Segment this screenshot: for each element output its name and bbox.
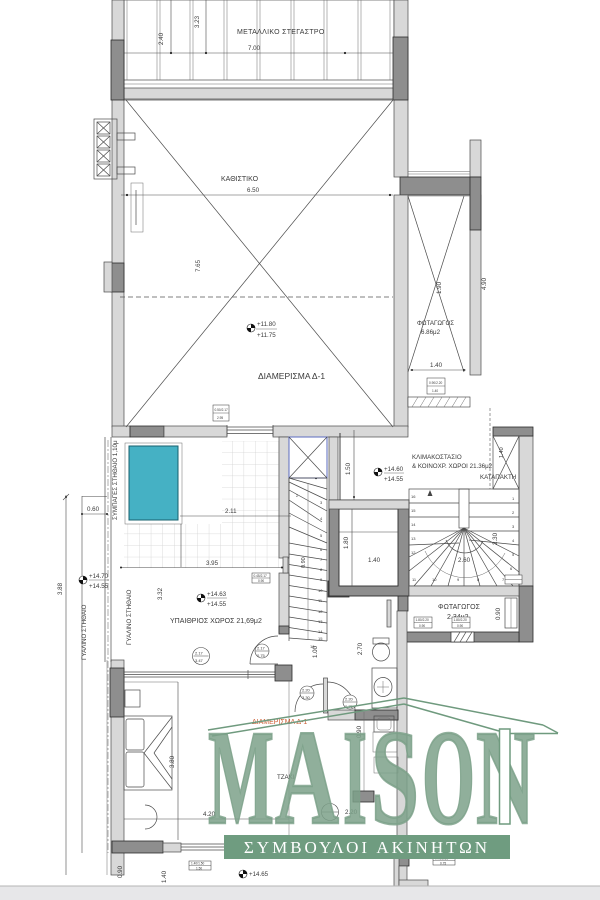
svg-text:2.17: 2.17 — [195, 651, 204, 656]
svg-text:2.11: 2.11 — [225, 508, 237, 515]
svg-text:16: 16 — [411, 494, 416, 499]
svg-text:0.90: 0.90 — [117, 865, 124, 878]
svg-text:A: A — [275, 703, 339, 853]
svg-text:1.40: 1.40 — [161, 870, 168, 883]
svg-text:0.50/2.17: 0.50/2.17 — [215, 408, 229, 412]
svg-text:7.65: 7.65 — [195, 259, 202, 272]
svg-text:1.80: 1.80 — [343, 536, 350, 549]
svg-text:0.60: 0.60 — [87, 506, 100, 513]
svg-text:+14.65: +14.65 — [249, 871, 269, 878]
svg-text:ΥΠΑΙΘΡΙΟΣ ΧΩΡΟΣ 21,69μ2: ΥΠΑΙΘΡΙΟΣ ΧΩΡΟΣ 21,69μ2 — [170, 618, 262, 625]
svg-text:6.50: 6.50 — [247, 187, 260, 194]
svg-text:0.90: 0.90 — [258, 579, 264, 583]
svg-text:ΣΥΜΠΑΓΕΣ ΣΤΗΘΑΙΟ 1,10μ: ΣΥΜΠΑΓΕΣ ΣΤΗΘΑΙΟ 1,10μ — [112, 440, 119, 520]
svg-text:14: 14 — [318, 629, 323, 634]
svg-text:0.90: 0.90 — [419, 624, 425, 628]
svg-text:2.40: 2.40 — [158, 32, 165, 45]
svg-text:15: 15 — [318, 636, 323, 641]
svg-text:ΚΑΘΙΣΤΙΚΟ: ΚΑΘΙΣΤΙΚΟ — [221, 176, 259, 183]
svg-text:ΚΛΙΜΑΚΟΣΤΑΣΙΟ: ΚΛΙΜΑΚΟΣΤΑΣΙΟ — [412, 454, 462, 461]
svg-text:ΦΩΤΑΓΩΓΟΣ: ΦΩΤΑΓΩΓΟΣ — [438, 604, 481, 611]
svg-text:O: O — [422, 703, 475, 853]
svg-text:S: S — [371, 703, 419, 853]
svg-text:2.30: 2.30 — [492, 532, 499, 545]
svg-text:0.90/2.20: 0.90/2.20 — [429, 381, 443, 385]
svg-text:1.40: 1.40 — [499, 447, 505, 458]
svg-text:2.20: 2.20 — [345, 697, 354, 702]
svg-text:2.70: 2.70 — [357, 642, 364, 655]
svg-text:6.86μ2: 6.86μ2 — [421, 329, 441, 336]
svg-text:+14.63: +14.63 — [207, 591, 227, 598]
svg-text:0.90: 0.90 — [495, 607, 502, 620]
svg-text:0.45/2.17: 0.45/2.17 — [254, 574, 268, 578]
svg-text:+14.55: +14.55 — [207, 601, 227, 608]
svg-text:ΜΕΤΑΛΛΙΚΟ ΣΤΕΓΑΣΤΡΟ: ΜΕΤΑΛΛΙΚΟ ΣΤΕΓΑΣΤΡΟ — [237, 29, 325, 36]
svg-text:2.20: 2.20 — [302, 688, 311, 693]
svg-text:3.47: 3.47 — [195, 658, 204, 663]
svg-text:10: 10 — [432, 577, 437, 582]
svg-text:+14.55: +14.55 — [89, 583, 109, 590]
svg-text:1.40/1.50: 1.40/1.50 — [191, 862, 205, 866]
svg-text:12: 12 — [411, 550, 416, 555]
svg-text:1.40: 1.40 — [368, 557, 381, 564]
svg-text:1.50: 1.50 — [196, 867, 202, 871]
svg-text:3.23: 3.23 — [194, 15, 201, 28]
svg-text:1.40: 1.40 — [432, 389, 438, 393]
svg-text:10: 10 — [318, 588, 323, 593]
svg-text:3.88: 3.88 — [57, 582, 64, 595]
svg-text:+11.75: +11.75 — [257, 332, 276, 339]
svg-text:ΣΥΜΒΟΥΛΟΙ ΑΚΙΝΗΤΩΝ: ΣΥΜΒΟΥΛΟΙ ΑΚΙΝΗΤΩΝ — [244, 838, 490, 857]
svg-text:ΔΙΑΜΕΡΙΣΜΑ Δ-1: ΔΙΑΜΕΡΙΣΜΑ Δ-1 — [258, 371, 325, 381]
svg-text:1.90: 1.90 — [436, 281, 443, 294]
svg-text:ΦΩΤΑΓΩΓΟΣ: ΦΩΤΑΓΩΓΟΣ — [417, 320, 454, 327]
svg-text:15: 15 — [411, 508, 416, 513]
svg-text:7.00: 7.00 — [248, 45, 261, 52]
svg-text:+14.60: +14.60 — [384, 466, 404, 473]
svg-text:1.40: 1.40 — [430, 362, 443, 369]
svg-text:1.00: 1.00 — [312, 645, 319, 658]
svg-text:13: 13 — [318, 619, 323, 624]
svg-text:+14.70: +14.70 — [89, 573, 109, 580]
svg-text:3.30: 3.30 — [302, 695, 311, 700]
svg-text:12: 12 — [318, 609, 323, 614]
svg-text:14: 14 — [411, 522, 416, 527]
svg-text:4.90: 4.90 — [481, 277, 488, 290]
svg-text:+14.55: +14.55 — [384, 476, 404, 483]
svg-text:M: M — [208, 703, 274, 853]
svg-text:+11.80: +11.80 — [257, 321, 276, 328]
svg-text:3.32: 3.32 — [157, 587, 164, 600]
svg-text:3.95: 3.95 — [206, 560, 219, 567]
svg-text:0.90: 0.90 — [457, 624, 463, 628]
svg-text:2.17: 2.17 — [257, 646, 266, 651]
svg-text:13: 13 — [411, 536, 416, 541]
svg-text:& ΚΟΙΝΟΧΡ. ΧΩΡΟΙ 21.36μ2: & ΚΟΙΝΟΧΡ. ΧΩΡΟΙ 21.36μ2 — [412, 463, 493, 470]
svg-text:1.80/2.20: 1.80/2.20 — [454, 618, 468, 622]
svg-text:0.75: 0.75 — [257, 653, 266, 658]
svg-text:0.75: 0.75 — [440, 862, 446, 866]
svg-text:ΓΥΑΛΙΝΟ ΣΤΗΘΑΙΟ: ΓΥΑΛΙΝΟ ΣΤΗΘΑΙΟ — [126, 589, 133, 645]
svg-text:1.80/2.20: 1.80/2.20 — [416, 618, 430, 622]
svg-text:1.50: 1.50 — [345, 462, 352, 475]
svg-text:ΓΥΑΛΙΝΟ ΣΤΗΘΑΙΟ: ΓΥΑΛΙΝΟ ΣΤΗΘΑΙΟ — [81, 604, 88, 660]
svg-text:3.80: 3.80 — [169, 755, 176, 768]
svg-text:ΚΑΤΑΠΑΚΤΗ: ΚΑΤΑΠΑΚΤΗ — [480, 474, 516, 481]
svg-text:0.90: 0.90 — [301, 557, 307, 568]
svg-text:2.95: 2.95 — [217, 416, 223, 420]
svg-text:2.60: 2.60 — [458, 557, 471, 564]
svg-text:I: I — [343, 703, 367, 853]
